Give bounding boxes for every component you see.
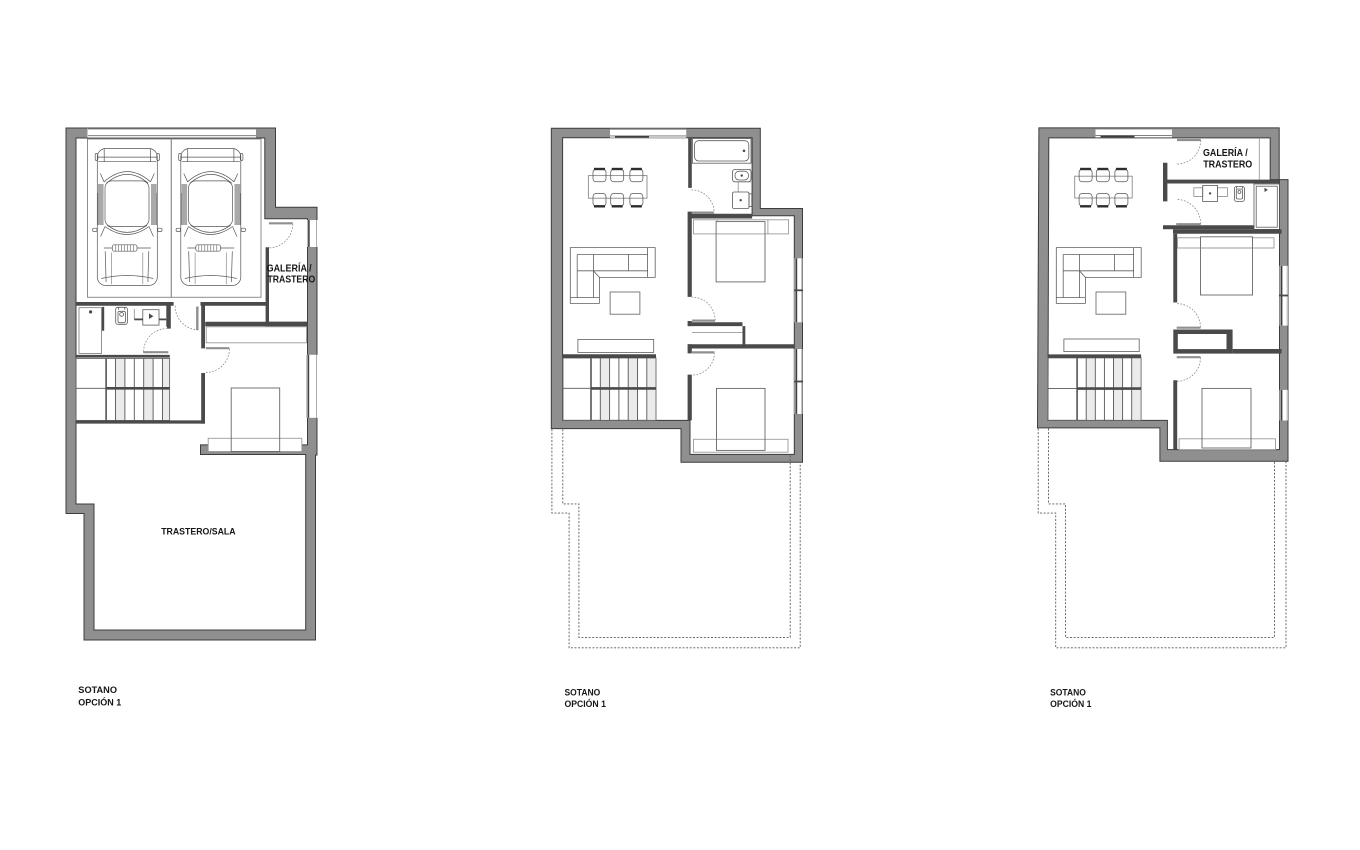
svg-text:SOTANO: SOTANO [565, 688, 601, 699]
svg-text:TRASTERO/SALA: TRASTERO/SALA [161, 526, 236, 537]
svg-text:OPCIÓN 1: OPCIÓN 1 [1050, 698, 1092, 710]
svg-text:GALERÍA /: GALERÍA / [267, 262, 312, 275]
svg-text:GALERÍA /: GALERÍA / [1203, 146, 1248, 159]
svg-text:OPCIÓN 1: OPCIÓN 1 [565, 698, 607, 710]
svg-text:OPCIÓN 1: OPCIÓN 1 [78, 696, 122, 708]
svg-text:SOTANO: SOTANO [78, 685, 117, 696]
svg-text:SOTANO: SOTANO [1050, 688, 1086, 699]
svg-text:TRASTERO: TRASTERO [268, 275, 316, 286]
svg-text:TRASTERO: TRASTERO [1203, 159, 1252, 170]
